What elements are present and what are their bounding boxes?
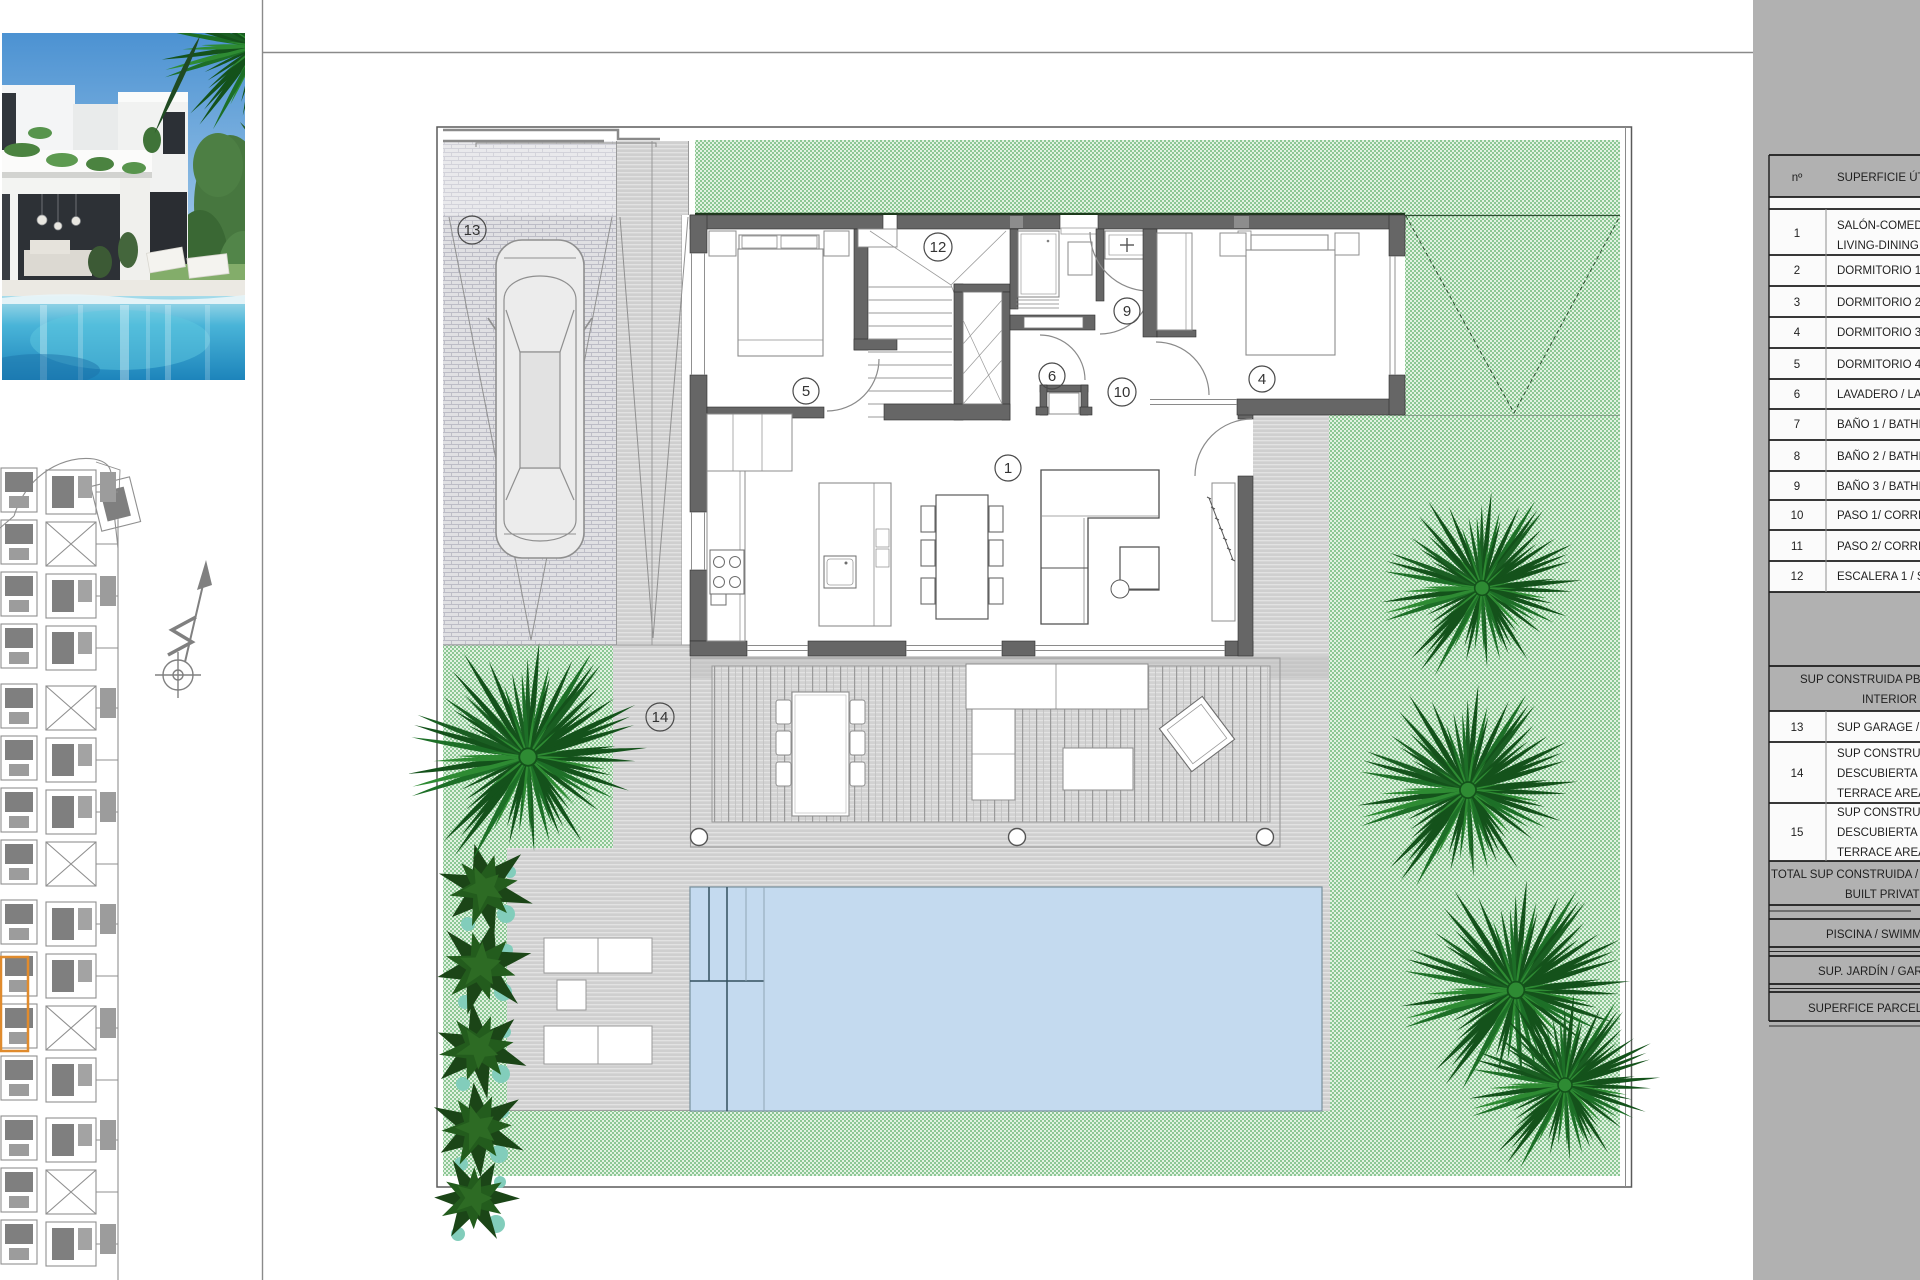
svg-text:DORMITORIO 1 / BEDROOM: DORMITORIO 1 / BEDROOM <box>1837 265 1920 277</box>
svg-text:SUP GARAGE / GARAG: SUP GARAGE / GARAG <box>1837 722 1920 734</box>
svg-text:DESCUBIERTA / OPEN: DESCUBIERTA / OPEN <box>1837 827 1920 839</box>
svg-text:13: 13 <box>464 222 481 239</box>
svg-text:SUP CONSTRUIDA PB INTERIOR /: SUP CONSTRUIDA PB INTERIOR / <box>1800 674 1920 686</box>
svg-text:SALÓN-COMEDOR / C: SALÓN-COMEDOR / C <box>1837 219 1920 232</box>
svg-text:TERRACE AREA 1: TERRACE AREA 1 <box>1837 788 1920 800</box>
svg-text:12: 12 <box>930 239 947 256</box>
svg-text:5: 5 <box>802 383 810 400</box>
svg-text:DORMITORIO 4 / BEDROOM: DORMITORIO 4 / BEDROOM <box>1837 359 1920 371</box>
svg-text:15: 15 <box>1791 827 1804 839</box>
svg-text:13: 13 <box>1791 722 1804 734</box>
svg-text:10: 10 <box>1114 384 1131 401</box>
svg-text:6: 6 <box>1794 389 1800 401</box>
svg-text:14: 14 <box>652 709 669 726</box>
svg-text:SUPERFICIE ÚTIL / USEFUL: SUPERFICIE ÚTIL / USEFUL <box>1837 171 1920 184</box>
svg-text:BAÑO 1 / BATHROOM 1: BAÑO 1 / BATHROOM 1 <box>1837 418 1920 431</box>
svg-text:BAÑO 3 / BATHROOM 3: BAÑO 3 / BATHROOM 3 <box>1837 480 1920 493</box>
svg-text:1: 1 <box>1794 228 1800 240</box>
svg-text:DORMITORIO 3 / BEDROOM: DORMITORIO 3 / BEDROOM <box>1837 327 1920 339</box>
svg-text:LIVING-DINING ROOM: LIVING-DINING ROOM <box>1837 240 1920 252</box>
svg-text:10: 10 <box>1791 510 1804 522</box>
svg-text:TERRACE AREA 2: TERRACE AREA 2 <box>1837 847 1920 859</box>
svg-text:DESCUBIERTA / OPEN: DESCUBIERTA / OPEN <box>1837 768 1920 780</box>
svg-text:TOTAL SUP CONSTRUIDA /: TOTAL SUP CONSTRUIDA / <box>1771 869 1919 881</box>
svg-text:PASO 2/ CORRIDOR 2: PASO 2/ CORRIDOR 2 <box>1837 541 1920 553</box>
svg-text:DORMITORIO 2 / BEDROOM: DORMITORIO 2 / BEDROOM <box>1837 297 1920 309</box>
svg-text:12: 12 <box>1791 571 1804 583</box>
svg-text:4: 4 <box>1258 371 1266 388</box>
svg-text:SUP. JARDÍN / GARDEN: SUP. JARDÍN / GARDEN <box>1818 965 1920 978</box>
svg-text:1: 1 <box>1004 460 1012 477</box>
svg-text:11: 11 <box>1791 541 1803 553</box>
svg-text:6: 6 <box>1048 368 1056 385</box>
svg-text:3: 3 <box>1794 297 1800 309</box>
svg-text:9: 9 <box>1794 481 1800 493</box>
svg-text:5: 5 <box>1794 359 1800 371</box>
svg-text:SUPERFICE PARCELA /: SUPERFICE PARCELA / <box>1808 1003 1920 1015</box>
svg-text:8: 8 <box>1794 451 1800 463</box>
svg-text:INTERIOR BUILT: INTERIOR BUILT <box>1862 694 1920 706</box>
svg-text:SUP CONSTRUIDA PB: SUP CONSTRUIDA PB <box>1837 748 1920 760</box>
svg-text:ESCALERA 1 / STAIRS 1: ESCALERA 1 / STAIRS 1 <box>1837 571 1920 583</box>
svg-text:SUP CONSTRUIDA PB: SUP CONSTRUIDA PB <box>1837 807 1920 819</box>
svg-text:LAVADERO / LAUNDRY: LAVADERO / LAUNDRY <box>1837 389 1920 401</box>
svg-text:nº: nº <box>1792 172 1803 184</box>
svg-text:2: 2 <box>1794 265 1800 277</box>
svg-text:9: 9 <box>1123 303 1131 320</box>
svg-text:7: 7 <box>1794 419 1800 431</box>
svg-text:PISCINA / SWIMMING: PISCINA / SWIMMING <box>1826 929 1920 941</box>
svg-text:BUILT PRIVATE: BUILT PRIVATE <box>1845 889 1920 901</box>
svg-text:PASO 1/ CORRIDOR 1: PASO 1/ CORRIDOR 1 <box>1837 510 1920 522</box>
svg-text:4: 4 <box>1794 327 1801 339</box>
svg-text:BAÑO 2 / BATHROOM 2: BAÑO 2 / BATHROOM 2 <box>1837 450 1920 463</box>
svg-text:14: 14 <box>1791 768 1804 780</box>
